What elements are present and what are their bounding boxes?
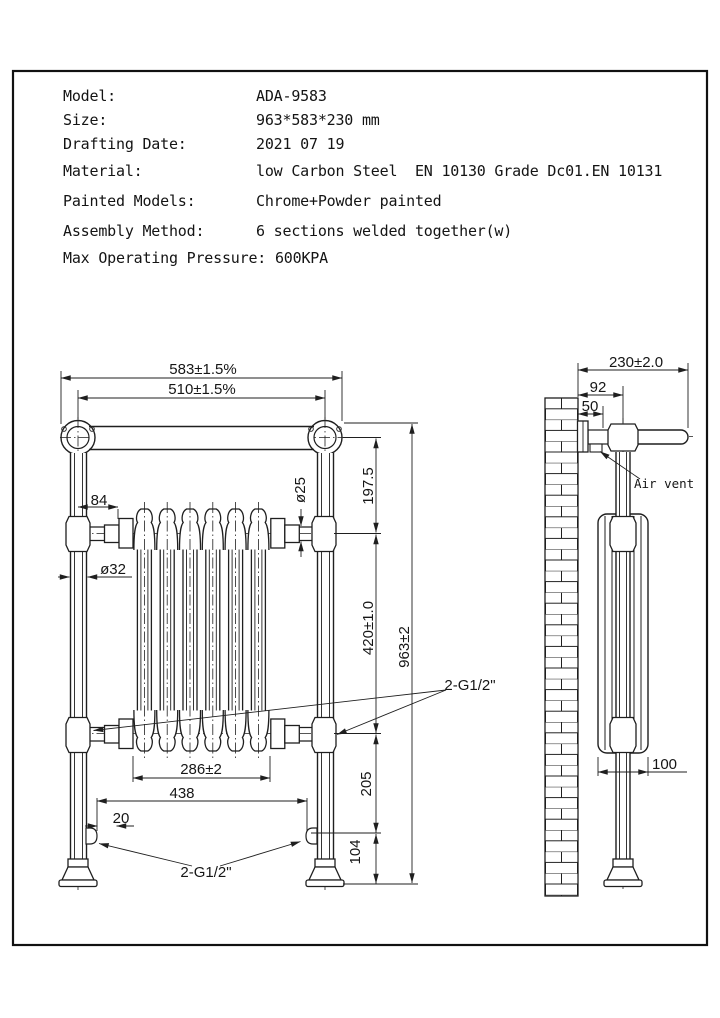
dim-radiator-height: 420±1.0	[360, 601, 377, 655]
dim-overall-depth: 230±2.0	[609, 354, 663, 371]
left-post	[71, 453, 87, 867]
side-foot	[604, 859, 642, 887]
towel-rail	[61, 421, 342, 455]
air-vent-valve	[590, 444, 602, 452]
post-tee-node	[608, 424, 638, 451]
right-post	[318, 453, 334, 867]
dim-inlet-span: 438	[169, 785, 194, 802]
dim-rail-length: 510±1.5%	[168, 381, 235, 398]
radiator-core	[134, 502, 269, 758]
label-inlets: 2-G1/2"	[180, 864, 231, 881]
dim-overall-height: 963±2	[396, 626, 413, 668]
drawing-sheet: Model:ADA-9583 Size:963*583*230 mm Draft…	[0, 0, 720, 1018]
side-rail-assembly	[578, 421, 689, 452]
dim-wall-to-post: 92	[590, 379, 607, 396]
dim-top-to-radiator: 197.5	[360, 467, 377, 505]
label-connections: 2-G1/2"	[444, 677, 495, 694]
side-post	[616, 452, 630, 866]
dim-inlet-stub: 20	[113, 810, 130, 827]
side-view	[545, 398, 693, 896]
dim-radiator-depth: 100	[652, 756, 677, 773]
dim-post-diameter: ø32	[100, 561, 126, 578]
leader-inlets	[99, 844, 192, 867]
brick-wall	[545, 398, 578, 896]
technical-drawing: 583±1.5% 510±1.5% 197.5 ø25 84 ø32 420±1…	[0, 0, 720, 1018]
dim-overall-width: 583±1.5%	[169, 361, 236, 378]
dim-radiator-width: 286±2	[180, 761, 222, 778]
dim-radiator-offset: 84	[91, 492, 108, 509]
dim-inlet-height: 104	[347, 839, 364, 864]
leader-inlets	[220, 842, 301, 867]
label-air-vent: Air vent	[634, 476, 694, 491]
dim-rail-diameter: ø25	[292, 477, 309, 503]
inlet-tails	[86, 828, 317, 844]
lower-connection-tubes	[86, 719, 318, 749]
wall-section	[545, 398, 578, 896]
dim-radiator-to-inlet: 205	[358, 771, 375, 796]
dim-wall-to-bracket: 50	[582, 398, 599, 415]
